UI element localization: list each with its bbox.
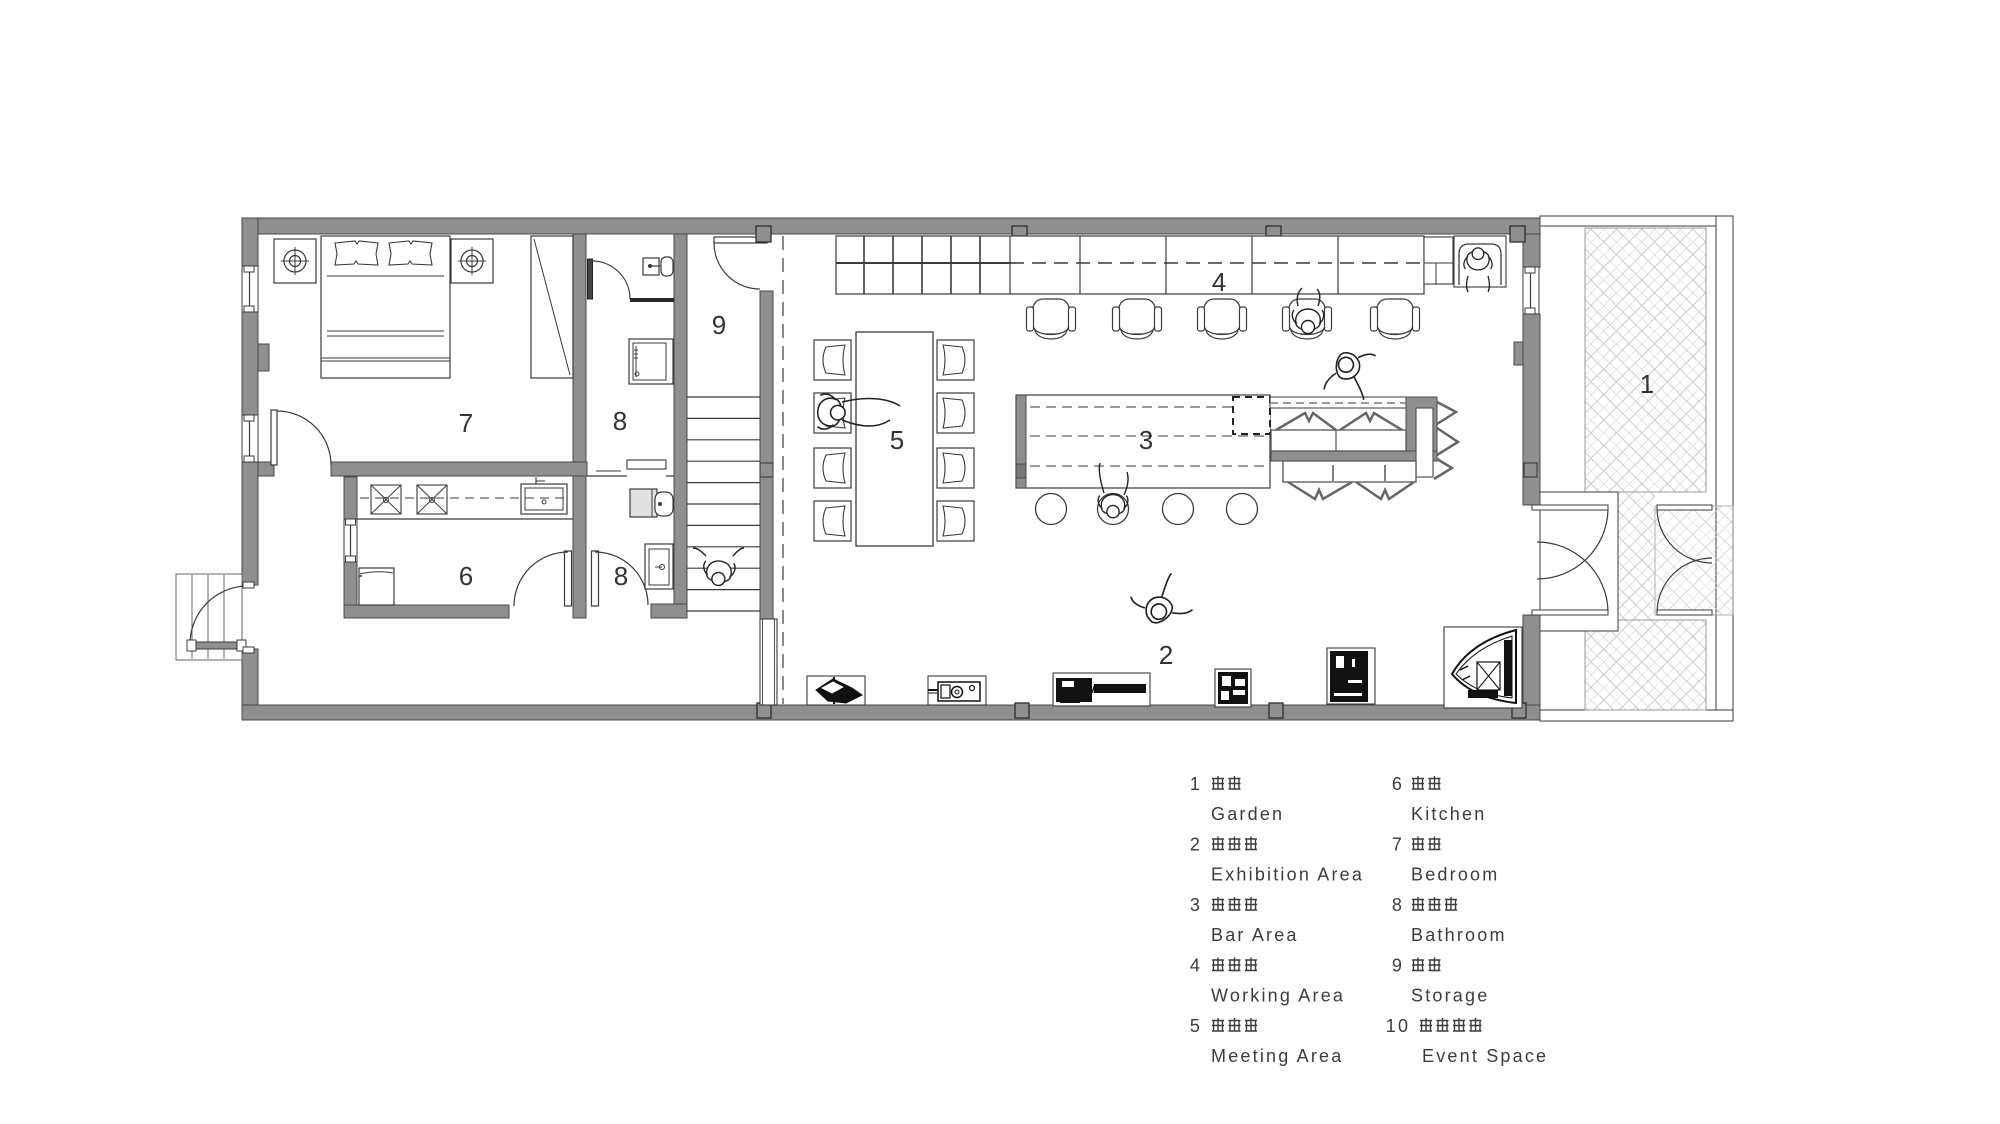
svg-text:8: 8 <box>613 406 627 436</box>
svg-text:5: 5 <box>1190 1016 1202 1036</box>
svg-text:6: 6 <box>1392 774 1404 794</box>
svg-text:7: 7 <box>1392 835 1404 855</box>
svg-text:Exhibition Area: Exhibition Area <box>1211 865 1364 885</box>
svg-text:Event Space: Event Space <box>1422 1046 1548 1066</box>
svg-text:8: 8 <box>1392 895 1404 915</box>
svg-text:1: 1 <box>1190 774 1202 794</box>
svg-text:Garden: Garden <box>1211 804 1284 824</box>
svg-text:Working Area: Working Area <box>1211 986 1345 1006</box>
svg-text:Storage: Storage <box>1411 986 1489 1006</box>
svg-text:Kitchen: Kitchen <box>1411 804 1486 824</box>
svg-text:2: 2 <box>1190 835 1202 855</box>
svg-text:6: 6 <box>459 561 473 591</box>
svg-text:9: 9 <box>1392 956 1404 976</box>
svg-text:8: 8 <box>614 561 628 591</box>
svg-text:Meeting Area: Meeting Area <box>1211 1046 1343 1066</box>
svg-text:10: 10 <box>1386 1016 1410 1036</box>
svg-text:4: 4 <box>1212 267 1226 297</box>
svg-text:Bar Area: Bar Area <box>1211 925 1299 945</box>
svg-text:3: 3 <box>1139 425 1153 455</box>
svg-text:7: 7 <box>459 408 473 438</box>
svg-text:Bathroom: Bathroom <box>1411 925 1507 945</box>
svg-text:9: 9 <box>712 310 726 340</box>
svg-text:Bedroom: Bedroom <box>1411 865 1499 885</box>
svg-text:3: 3 <box>1190 895 1202 915</box>
svg-text:1: 1 <box>1640 369 1654 399</box>
svg-text:4: 4 <box>1190 956 1202 976</box>
svg-text:5: 5 <box>890 425 904 455</box>
svg-text:2: 2 <box>1159 640 1173 670</box>
